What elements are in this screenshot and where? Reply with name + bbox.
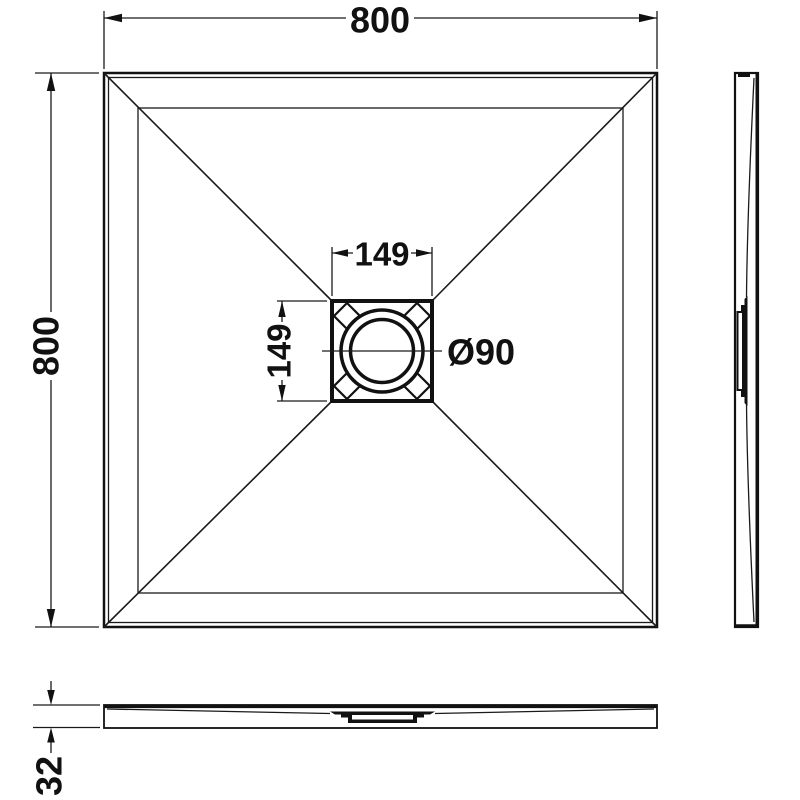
arrow-right xyxy=(639,14,657,22)
plan-view xyxy=(104,73,657,627)
drawing-sheet: 800 800 149 149 Ø90 xyxy=(0,0,800,800)
arrow-down xyxy=(47,609,55,627)
dim-plan-height: 800 xyxy=(26,73,100,627)
side-drain-slot xyxy=(739,313,743,389)
arrow-up xyxy=(47,728,55,743)
arrow-down xyxy=(47,690,55,705)
drain-assembly xyxy=(322,301,442,401)
shower-tray-drawing: 800 800 149 149 Ø90 xyxy=(0,0,800,800)
arrow-down xyxy=(278,385,285,401)
side-view xyxy=(735,73,758,627)
dim-drain-width: 149 xyxy=(332,236,432,297)
dim-label-plan-width: 800 xyxy=(350,0,410,41)
front-view xyxy=(104,705,657,728)
dim-label-tray-thickness: 32 xyxy=(29,756,70,796)
dim-label-plan-height: 800 xyxy=(26,316,67,376)
dim-tray-thickness: 32 xyxy=(29,681,101,796)
arrow-left xyxy=(332,249,348,256)
dim-label-drain-width: 149 xyxy=(354,236,409,273)
dim-drain-height: 149 xyxy=(261,301,328,401)
side-rim-mark xyxy=(738,73,750,77)
front-drain-slot xyxy=(352,715,413,720)
arrow-up xyxy=(47,73,55,91)
arrow-up xyxy=(278,301,285,317)
arrow-left xyxy=(104,14,122,22)
arrow-right xyxy=(416,249,432,256)
dim-plan-width: 800 xyxy=(104,0,657,69)
dim-label-drain-diameter: Ø90 xyxy=(447,332,515,373)
dim-label-drain-height: 149 xyxy=(261,323,298,378)
